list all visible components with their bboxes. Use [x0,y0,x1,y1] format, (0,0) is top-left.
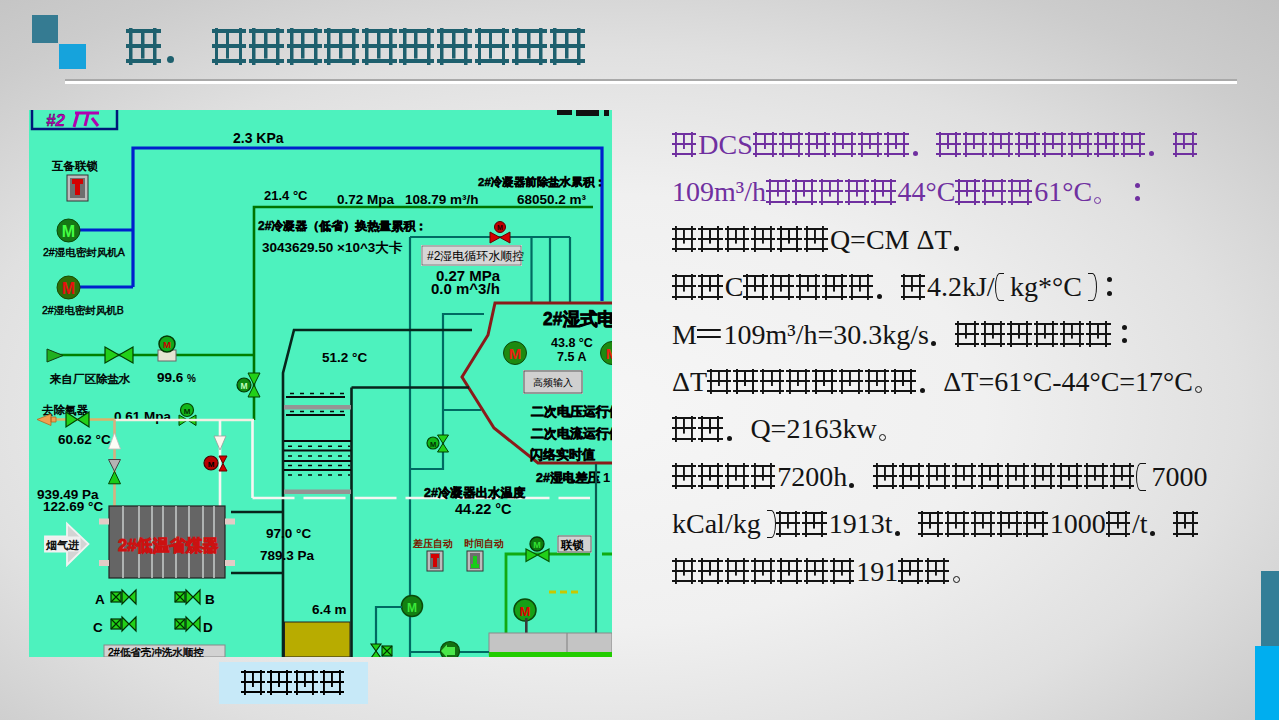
svg-text:7.5 A: 7.5 A [557,350,586,364]
svg-text:60.62 °C: 60.62 °C [58,432,111,447]
svg-text:M: M [606,345,612,362]
svg-text:M: M [533,540,541,550]
svg-text:M: M [407,601,417,615]
svg-text:21.4 °C: 21.4 °C [264,188,308,203]
svg-text:2#冷凝器前除盐水累积：: 2#冷凝器前除盐水累积： [478,176,606,188]
svg-text:M: M [208,460,215,469]
svg-text:D: D [203,620,213,635]
svg-text:2#冷凝器出水温度: 2#冷凝器出水温度 [424,486,526,500]
svg-text:51.2 °C: 51.2 °C [322,350,367,365]
svg-text:二次电流运行值: 二次电流运行值 [531,426,612,441]
svg-text:2#冷凝器（低省）换热量累积：: 2#冷凝器（低省）换热量累积： [258,219,427,233]
svg-text:2#湿电密封风机A: 2#湿电密封风机A [43,246,125,258]
svg-text:M: M [509,345,522,362]
svg-text:6.4 m: 6.4 m [312,602,347,617]
svg-text:时间自动: 时间自动 [464,538,504,549]
svg-text:0.72 Mpa: 0.72 Mpa [337,192,395,207]
svg-text:M: M [430,440,436,449]
svg-text:闪络实时值: 闪络实时值 [530,447,595,462]
svg-text:M: M [62,223,75,240]
svg-text:108.79 m³/h: 108.79 m³/h [405,192,479,207]
svg-text:2#低温省煤器: 2#低温省煤器 [118,536,219,554]
svg-text:二次电压运行值: 二次电压运行值 [531,404,612,419]
svg-text:0.61 Mpa: 0.61 Mpa [114,409,172,424]
svg-text:2.3 KPa: 2.3 KPa [233,130,284,146]
svg-text:A: A [95,592,105,607]
svg-text:联锁: 联锁 [560,539,585,551]
svg-text:1: 1 [603,470,610,485]
svg-text:M: M [497,224,503,231]
svg-text:2#湿式电除: 2#湿式电除 [543,309,612,329]
svg-text:0.0 m^3/h: 0.0 m^3/h [431,280,500,297]
svg-text:3043629.50 ×10^3大卡: 3043629.50 ×10^3大卡 [262,240,403,255]
svg-text:43.8 °C: 43.8 °C [551,336,593,350]
svg-text:#2: #2 [46,111,65,130]
svg-text:高频输入: 高频输入 [533,377,573,388]
svg-text:68050.2 m³: 68050.2 m³ [517,192,587,207]
svg-text:M: M [240,381,247,391]
svg-text:M: M [520,604,531,619]
svg-text:44.22 °C: 44.22 °C [455,501,512,517]
svg-text:B: B [205,592,215,607]
svg-text:C: C [93,620,103,635]
svg-text:#2湿电循环水顺控: #2湿电循环水顺控 [427,249,524,263]
svg-text:M: M [62,280,75,297]
svg-text:来自厂区除盐水: 来自厂区除盐水 [50,373,131,385]
svg-text:M: M [163,339,171,350]
svg-text:97.0 °C: 97.0 °C [266,526,311,541]
svg-text:2#湿电差压: 2#湿电差压 [536,471,600,485]
svg-text:789.3 Pa: 789.3 Pa [260,548,315,563]
svg-text:2#低省壳冲洗水顺控: 2#低省壳冲洗水顺控 [108,646,204,657]
svg-text:99.6 %: 99.6 % [157,370,196,385]
svg-text:122.69 °C: 122.69 °C [43,499,103,514]
svg-text:M: M [184,407,191,416]
svg-text:互备联锁: 互备联锁 [52,160,98,172]
svg-text:烟气进: 烟气进 [46,539,79,551]
svg-text:去除氧器: 去除氧器 [42,404,89,416]
svg-text:2#湿电密封风机B: 2#湿电密封风机B [42,304,124,316]
svg-text:差压自动: 差压自动 [412,538,453,549]
